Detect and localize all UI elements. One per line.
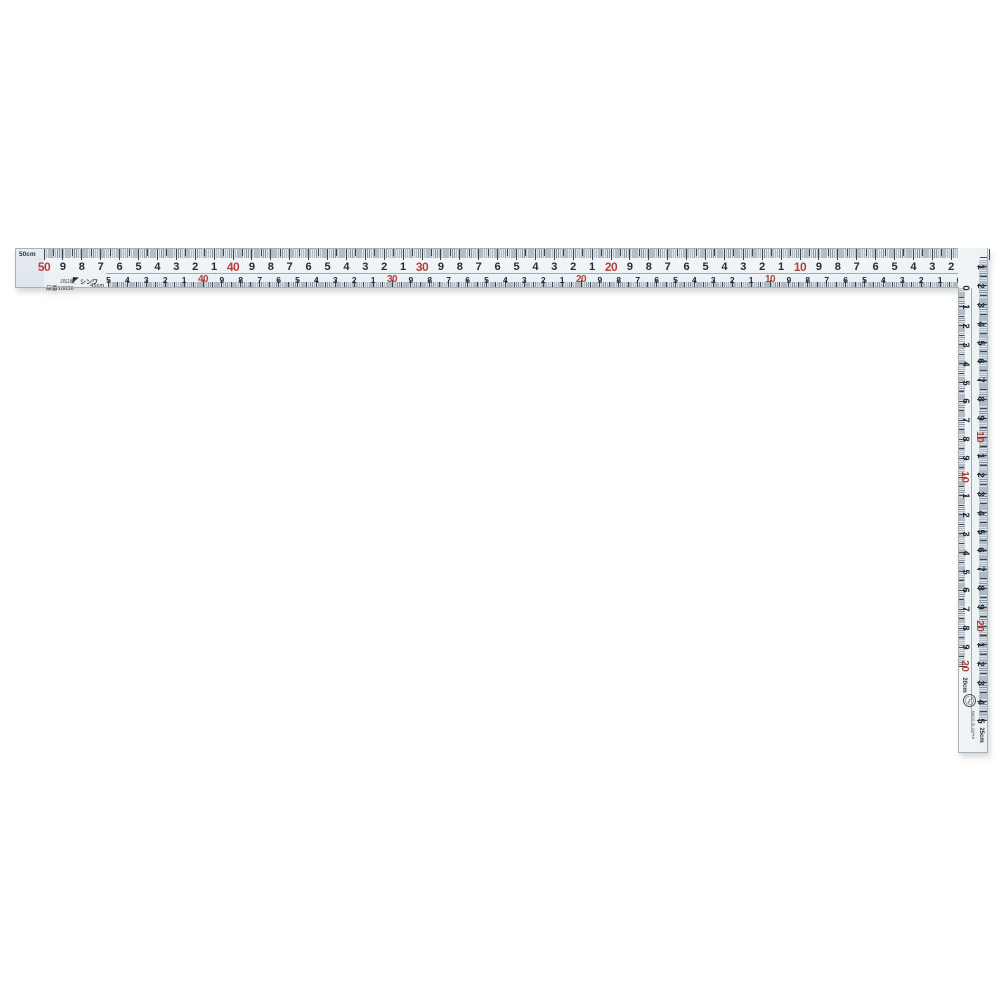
top-scale-number: 3 [173, 261, 179, 273]
half-cm-tick [280, 249, 281, 256]
top-scale-number: 3 [740, 261, 746, 273]
half-cm-tick [752, 249, 753, 256]
outer-scale-number: 4 [974, 507, 986, 519]
half-cm-tick [714, 249, 715, 256]
cm-tick [611, 249, 612, 260]
top-scale-number: 40 [227, 260, 239, 274]
top-scale-number: 2 [381, 261, 387, 273]
cm-tick [195, 249, 196, 260]
bottom-scale-number: 3 [900, 275, 905, 285]
cm-tick [554, 249, 555, 260]
cm-tick [233, 249, 234, 260]
outer-scale-number: 9 [974, 601, 986, 613]
half-cm-tick [980, 276, 987, 277]
half-cm-tick [809, 249, 810, 256]
outer-scale-number: 7 [974, 563, 986, 575]
half-cm-tick [469, 249, 470, 256]
cm-tick [837, 249, 838, 260]
cm-tick [743, 249, 744, 260]
short-arm: 25cm 20cm 〄 MADE IN JAPAN 12345678910123… [958, 248, 988, 753]
cm-tick [724, 249, 725, 260]
bottom-scale-number: 1 [749, 275, 754, 285]
half-cm-tick [91, 249, 92, 256]
cm-tick [346, 249, 347, 260]
cm-tick [592, 249, 593, 260]
bottom-scale-number: 4 [881, 275, 886, 285]
cm-tick [214, 249, 215, 260]
top-scale-number: 2 [192, 261, 198, 273]
inner-scale-number: 8 [959, 622, 971, 634]
bottom-scale-number: 1 [560, 275, 565, 285]
half-cm-tick [980, 692, 987, 693]
bottom-scale-number: 1 [371, 275, 376, 285]
long-arm-inner-edge [15, 287, 959, 288]
inner-scale-number: 4 [959, 358, 971, 370]
cm-tick [459, 249, 460, 260]
inner-scale-number: 3 [959, 528, 971, 540]
outer-scale-number: 7 [974, 374, 986, 386]
cm-tick [157, 249, 158, 260]
half-cm-tick [980, 389, 987, 390]
bottom-scale-number: 8 [238, 275, 243, 285]
cm-tick [100, 249, 101, 260]
outer-scale-number: 5 [974, 715, 986, 727]
half-cm-tick [980, 257, 987, 258]
inner-scale-number: 3 [959, 339, 971, 351]
top-scale-number: 20 [605, 260, 617, 274]
half-cm-tick [980, 465, 987, 466]
cm-tick [270, 249, 271, 260]
top-scale-number: 2 [570, 261, 576, 273]
outer-scale-number: 2 [974, 280, 986, 292]
top-scale-number: 9 [816, 261, 822, 273]
bottom-scale-number: 30 [387, 274, 397, 285]
cm-tick [44, 249, 45, 260]
cm-tick [856, 249, 857, 260]
top-scale-number: 5 [135, 261, 141, 273]
cm-tick [62, 249, 63, 260]
bottom-scale-number: 40 [198, 274, 208, 285]
bottom-scale-number: 9 [220, 275, 225, 285]
outer-scale-number: 1 [974, 261, 986, 273]
half-cm-tick [620, 249, 621, 256]
cm-tick [800, 249, 801, 260]
half-cm-tick [204, 249, 205, 256]
bottom-scale-number: 2 [541, 275, 546, 285]
outer-scale-number: 9 [974, 412, 986, 424]
bottom-scale-number: 3 [144, 275, 149, 285]
top-scale-number: 7 [854, 261, 860, 273]
top-scale-number: 9 [438, 261, 444, 273]
cm-tick [686, 249, 687, 260]
top-scale-number: 4 [532, 261, 538, 273]
half-cm-tick [980, 616, 987, 617]
bottom-scale-number: 5 [106, 275, 111, 285]
inner-scale-number: 8 [959, 433, 971, 445]
outer-scale-number: 2 [974, 658, 986, 670]
outer-scale-end-label: 25cm [976, 726, 986, 744]
top-scale-number: 6 [873, 261, 879, 273]
half-cm-tick [299, 249, 300, 256]
half-cm-tick [980, 427, 987, 428]
top-scale-number: 5 [324, 261, 330, 273]
half-cm-tick [147, 249, 148, 256]
bottom-scale-number: 1 [182, 275, 187, 285]
half-cm-tick [980, 370, 987, 371]
outer-scale-number: 3 [974, 299, 986, 311]
inner-scale-number: 7 [959, 603, 971, 615]
cm-tick [403, 249, 404, 260]
cm-tick [762, 249, 763, 260]
bottom-scale-number: 7 [635, 275, 640, 285]
top-scale-number: 6 [684, 261, 690, 273]
bottom-scale-number: 4 [692, 275, 697, 285]
half-cm-tick [355, 249, 356, 256]
half-cm-tick [336, 249, 337, 256]
half-cm-tick [450, 249, 451, 256]
cm-tick [894, 249, 895, 260]
bottom-scale-number: 5 [673, 275, 678, 285]
cm-tick [705, 249, 706, 260]
bottom-scale-number: 10 [765, 274, 775, 285]
outer-scale-number: 6 [974, 355, 986, 367]
top-scale-number: 8 [268, 261, 274, 273]
cm-tick [932, 249, 933, 260]
half-cm-tick [980, 408, 987, 409]
half-cm-tick [980, 503, 987, 504]
half-cm-tick [771, 249, 772, 256]
half-cm-tick [866, 249, 867, 256]
top-scale-number: 2 [759, 261, 765, 273]
inner-scale-number: 1 [959, 301, 971, 313]
top-scale-number: 5 [891, 261, 897, 273]
half-cm-tick [980, 559, 987, 560]
half-cm-tick [318, 249, 319, 256]
cm-tick [440, 249, 441, 260]
inner-scale-number: 4 [959, 547, 971, 559]
top-scale-number: 6 [495, 261, 501, 273]
bottom-scale-number: 7 [446, 275, 451, 285]
top-scale-number: 5 [702, 261, 708, 273]
cm-tick [81, 249, 82, 260]
bottom-scale-number: 4 [314, 275, 319, 285]
bottom-scale-number: 7 [257, 275, 262, 285]
half-cm-tick [393, 249, 394, 256]
top-scale-number: 6 [117, 261, 123, 273]
inner-scale-number: 0 [959, 282, 971, 294]
bottom-scale-number: 5 [484, 275, 489, 285]
cm-tick [875, 249, 876, 260]
half-cm-tick [242, 249, 243, 256]
bottom-scale-number: 8 [427, 275, 432, 285]
outer-scale-number: 3 [974, 677, 986, 689]
top-scale-number: 30 [416, 260, 428, 274]
top-scale-number: 4 [343, 261, 349, 273]
top-scale-number: 1 [778, 261, 784, 273]
cm-tick [138, 249, 139, 260]
inner-scale-number: 2 [959, 509, 971, 521]
top-scale-number: 7 [476, 261, 482, 273]
inner-scale-number: 9 [959, 452, 971, 464]
top-scale-number: 4 [910, 261, 916, 273]
half-cm-tick [677, 249, 678, 256]
inner-scale-number: 1 [959, 490, 971, 502]
bottom-scale-number: 2 [919, 275, 924, 285]
half-cm-tick [223, 249, 224, 256]
half-cm-tick [563, 249, 564, 256]
cm-tick [667, 249, 668, 260]
cm-tick [384, 249, 385, 260]
half-cm-tick [980, 333, 987, 334]
cm-tick [629, 249, 630, 260]
bottom-scale-number: 2 [352, 275, 357, 285]
half-cm-tick [582, 249, 583, 256]
top-scale-number: 6 [306, 261, 312, 273]
outer-scale-number: 5 [974, 526, 986, 538]
product-photo: 50cm JIS1級 シンワ 品番10036 45cm 234567891012… [0, 0, 1000, 1000]
cm-tick [478, 249, 479, 260]
top-scale-number: 9 [60, 261, 66, 273]
half-cm-tick [72, 249, 73, 256]
long-arm-length-label: 50cm [19, 251, 36, 258]
cm-tick [176, 249, 177, 260]
half-cm-tick [261, 249, 262, 256]
bottom-scale-number: 6 [465, 275, 470, 285]
bottom-scale-number: 3 [333, 275, 338, 285]
cm-tick [535, 249, 536, 260]
cm-tick [781, 249, 782, 260]
half-cm-tick [166, 249, 167, 256]
half-cm-tick [374, 249, 375, 256]
bottom-scale-number: 8 [805, 275, 810, 285]
bottom-scale-number: 6 [843, 275, 848, 285]
bottom-scale-number: 9 [787, 275, 792, 285]
half-cm-tick [431, 249, 432, 256]
outer-scale-number: 5 [974, 337, 986, 349]
long-arm: 50cm JIS1級 シンワ 品番10036 45cm 234567891012… [15, 248, 988, 288]
half-cm-tick [847, 249, 848, 256]
cm-tick [119, 249, 120, 260]
inner-scale-number: 6 [959, 584, 971, 596]
cm-tick [308, 249, 309, 260]
half-cm-tick [507, 249, 508, 256]
cm-tick [951, 249, 952, 260]
inner-scale-number: 7 [959, 414, 971, 426]
bottom-scale-number: 8 [616, 275, 621, 285]
bottom-scale-number: 3 [711, 275, 716, 285]
cm-tick [289, 249, 290, 260]
top-scale-number: 4 [721, 261, 727, 273]
bottom-scale-number: 9 [409, 275, 414, 285]
half-cm-tick [980, 711, 987, 712]
half-cm-tick [658, 249, 659, 256]
short-arm-inner-edge [958, 288, 959, 753]
top-scale-number: 5 [513, 261, 519, 273]
top-scale-number: 9 [627, 261, 633, 273]
outer-scale-number: 1 [974, 450, 986, 462]
top-scale-number: 7 [98, 261, 104, 273]
inner-scale-number: 5 [959, 377, 971, 389]
half-cm-tick [980, 540, 987, 541]
inner-scale-number: 5 [959, 566, 971, 578]
top-scale-number: 9 [249, 261, 255, 273]
top-scale-number: 1 [589, 261, 595, 273]
half-cm-tick [544, 249, 545, 256]
bottom-scale-number: 6 [276, 275, 281, 285]
top-scale-number: 2 [948, 261, 954, 273]
bottom-scale-number: 6 [654, 275, 659, 285]
half-cm-tick [980, 314, 987, 315]
bottom-scale-number: 2 [163, 275, 168, 285]
cm-tick [516, 249, 517, 260]
half-cm-tick [828, 249, 829, 256]
half-cm-tick [980, 578, 987, 579]
outer-scale-number: 4 [974, 318, 986, 330]
cm-tick [818, 249, 819, 260]
inner-scale-number: 9 [959, 641, 971, 653]
half-cm-tick [790, 249, 791, 256]
cm-tick [365, 249, 366, 260]
half-cm-tick [639, 249, 640, 256]
bottom-scale-number: 20 [576, 274, 586, 285]
half-cm-tick [980, 484, 987, 485]
half-cm-tick [129, 249, 130, 256]
bottom-scale-number: 4 [125, 275, 130, 285]
top-scale-number: 3 [929, 261, 935, 273]
outer-scale-number: 10 [974, 430, 986, 444]
half-cm-tick [185, 249, 186, 256]
bottom-scale-number: 4 [503, 275, 508, 285]
bottom-scale-number: 2 [730, 275, 735, 285]
top-scale-number: 3 [362, 261, 368, 273]
top-scale-number: 8 [646, 261, 652, 273]
half-cm-tick [885, 249, 886, 256]
half-cm-tick [53, 249, 54, 256]
cm-tick [648, 249, 649, 260]
cm-tick [573, 249, 574, 260]
half-cm-tick [980, 597, 987, 598]
cm-tick [327, 249, 328, 260]
inner-scale-number: 6 [959, 395, 971, 407]
half-cm-tick [488, 249, 489, 256]
cm-tick [251, 249, 252, 260]
bottom-scale-number: 9 [598, 275, 603, 285]
inner-scale-number: 10 [959, 470, 971, 484]
top-scale-number: 1 [211, 261, 217, 273]
half-cm-tick [980, 351, 987, 352]
top-scale-number: 7 [287, 261, 293, 273]
half-cm-tick [525, 249, 526, 256]
cm-tick [989, 249, 990, 260]
top-scale-number: 3 [551, 261, 557, 273]
top-scale-number: 10 [794, 260, 806, 274]
top-scale-number: 4 [154, 261, 160, 273]
cm-tick [422, 249, 423, 260]
outer-scale-number: 20 [974, 619, 986, 633]
top-scale-number: 1 [400, 261, 406, 273]
half-cm-tick [733, 249, 734, 256]
bottom-scale-number: 7 [824, 275, 829, 285]
outer-scale-number: 4 [974, 696, 986, 708]
carpenter-square: 50cm JIS1級 シンワ 品番10036 45cm 234567891012… [0, 0, 1000, 1000]
bottom-scale-number: 5 [295, 275, 300, 285]
inner-scale-end-label: 20cm [959, 676, 969, 694]
outer-scale-number: 8 [974, 582, 986, 594]
bottom-scale-number: 3 [522, 275, 527, 285]
bottom-scale-number: 1 [938, 275, 943, 285]
outer-scale-number: 3 [974, 488, 986, 500]
half-cm-tick [980, 673, 987, 674]
outer-scale-number: 6 [974, 544, 986, 556]
inner-scale-number: 2 [959, 320, 971, 332]
top-scale-number: 8 [79, 261, 85, 273]
half-cm-tick [696, 249, 697, 256]
outer-scale-number: 1 [974, 639, 986, 651]
half-cm-tick [110, 249, 111, 256]
cm-tick [913, 249, 914, 260]
scale-divider-line [971, 288, 972, 733]
half-cm-tick [980, 295, 987, 296]
inner-scale-number: 20 [959, 659, 971, 673]
half-cm-tick [980, 635, 987, 636]
half-cm-tick [601, 249, 602, 256]
half-cm-tick [980, 446, 987, 447]
cm-tick [497, 249, 498, 260]
top-scale-number: 7 [665, 261, 671, 273]
top-scale-number: 8 [457, 261, 463, 273]
half-cm-tick [922, 249, 923, 256]
outer-scale-number: 2 [974, 469, 986, 481]
half-cm-tick [903, 249, 904, 256]
top-scale-number: 8 [835, 261, 841, 273]
half-cm-tick [412, 249, 413, 256]
half-cm-tick [941, 249, 942, 256]
half-cm-tick [980, 654, 987, 655]
half-cm-tick [980, 522, 987, 523]
bottom-scale-number: 5 [862, 275, 867, 285]
top-scale-number: 50 [38, 260, 50, 274]
outer-scale-number: 8 [974, 393, 986, 405]
